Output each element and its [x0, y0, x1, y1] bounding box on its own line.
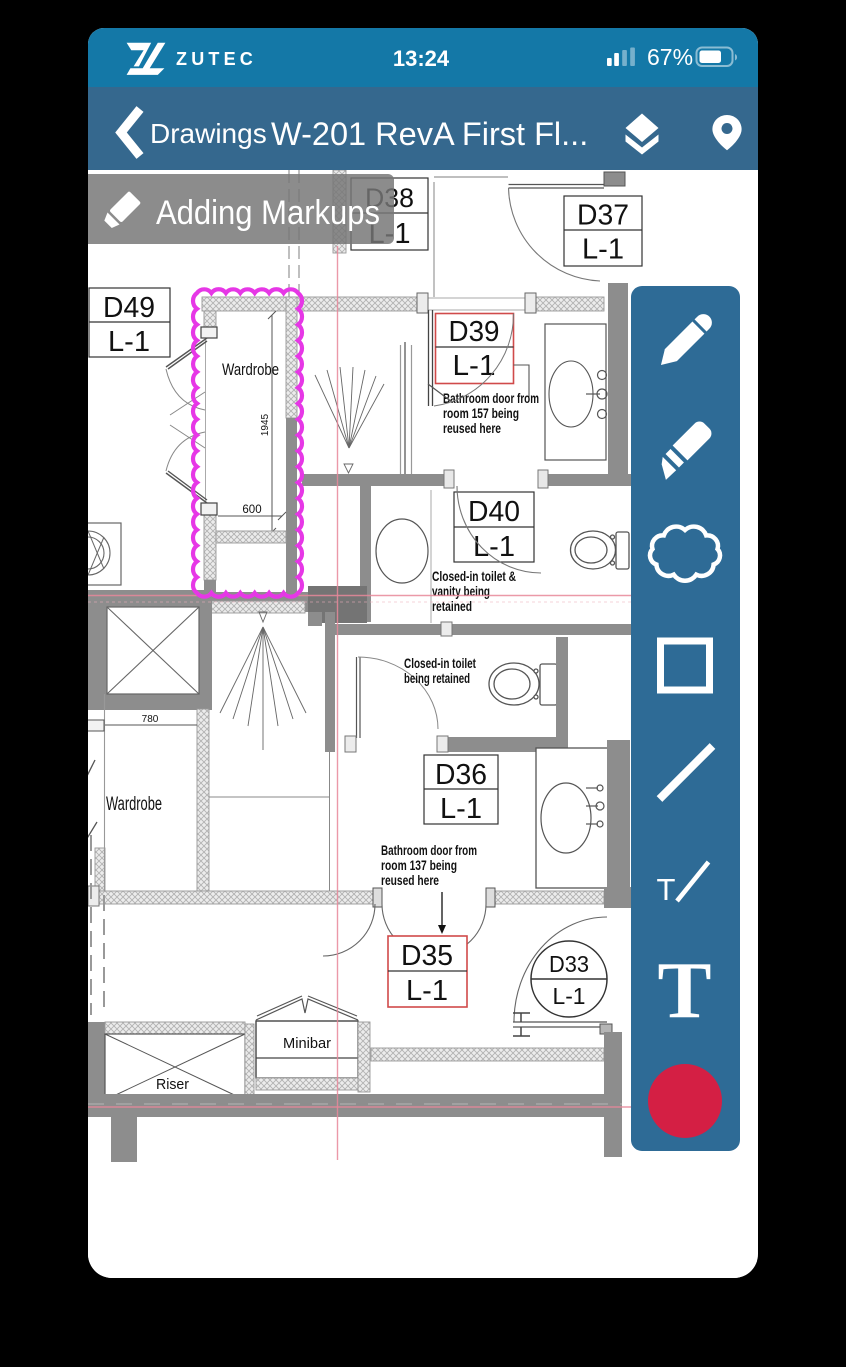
- svg-text:L-1: L-1: [440, 793, 482, 825]
- svg-text:13:24: 13:24: [393, 46, 450, 71]
- svg-text:room 157 being: room 157 being: [443, 406, 519, 421]
- svg-text:D39: D39: [449, 316, 500, 348]
- svg-text:67%: 67%: [647, 44, 693, 70]
- svg-text:L-1: L-1: [406, 975, 448, 1007]
- svg-text:L-1: L-1: [553, 983, 586, 1009]
- svg-text:Drawings: Drawings: [150, 118, 267, 149]
- svg-text:Wardrobe: Wardrobe: [222, 360, 279, 379]
- svg-text:D33: D33: [549, 951, 589, 977]
- svg-text:T: T: [657, 945, 711, 1035]
- svg-text:1945: 1945: [260, 413, 271, 436]
- svg-text:D35: D35: [401, 940, 453, 972]
- svg-text:vanity being: vanity being: [432, 584, 490, 599]
- svg-text:reused here: reused here: [381, 873, 439, 888]
- svg-text:Bathroom door from: Bathroom door from: [443, 391, 539, 406]
- svg-text:780: 780: [142, 714, 159, 725]
- svg-text:W-201 RevA First Fl...: W-201 RevA First Fl...: [271, 116, 588, 152]
- svg-text:Closed-in toilet: Closed-in toilet: [404, 656, 476, 671]
- svg-text:L-1: L-1: [582, 234, 624, 266]
- svg-text:reused here: reused here: [443, 421, 501, 436]
- svg-text:ZUTEC: ZUTEC: [176, 49, 257, 69]
- svg-text:D49: D49: [103, 292, 155, 324]
- svg-text:Minibar: Minibar: [283, 1035, 331, 1052]
- svg-text:L-1: L-1: [108, 326, 150, 358]
- svg-text:Closed-in toilet &: Closed-in toilet &: [432, 569, 516, 584]
- svg-text:D40: D40: [468, 496, 520, 528]
- svg-text:Wardrobe: Wardrobe: [106, 794, 162, 815]
- svg-text:Adding Markups: Adding Markups: [156, 194, 380, 232]
- svg-text:being retained: being retained: [404, 671, 470, 686]
- svg-text:retained: retained: [432, 599, 472, 614]
- svg-text:T: T: [656, 872, 675, 907]
- svg-text:room 137 being: room 137 being: [381, 858, 457, 873]
- svg-text:600: 600: [242, 504, 261, 516]
- svg-text:Bathroom door from: Bathroom door from: [381, 843, 477, 858]
- svg-text:D36: D36: [435, 759, 487, 791]
- svg-text:Riser: Riser: [156, 1076, 189, 1093]
- svg-text:D37: D37: [577, 200, 629, 232]
